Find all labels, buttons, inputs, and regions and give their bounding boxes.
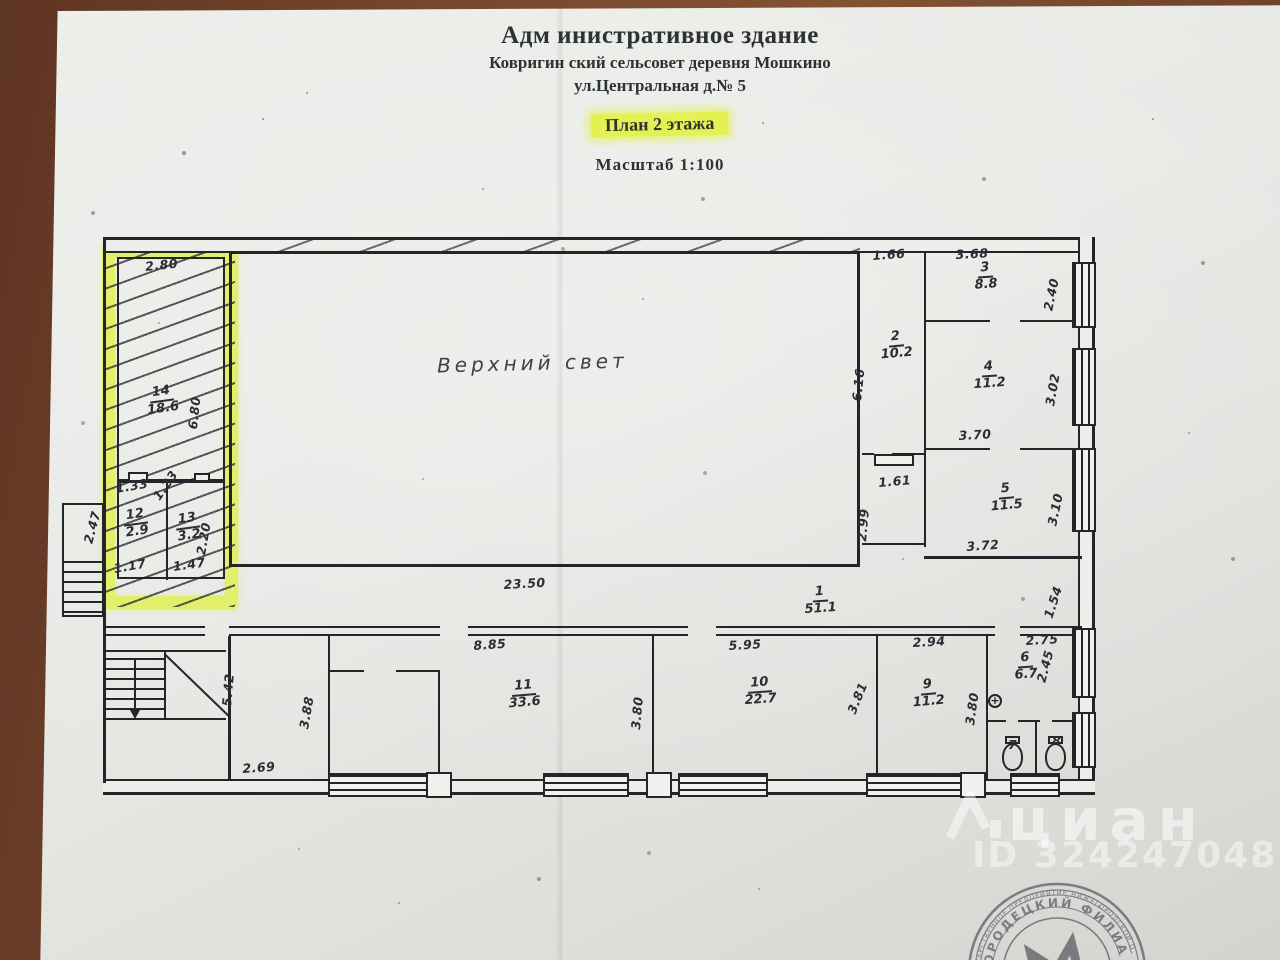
- door-symbol: +: [988, 694, 1002, 708]
- window-symbol: [1072, 712, 1096, 768]
- room-number-area-label: 911.2: [911, 677, 946, 710]
- document-subtitle-2: ул.Центральная д.№ 5: [430, 76, 890, 96]
- dimension-label: 7: [1008, 737, 1017, 752]
- room-number-area-label: 1133.6: [507, 678, 542, 711]
- wall-segment: [228, 636, 231, 780]
- wall-segment: [1020, 448, 1080, 450]
- window-symbol: [1072, 448, 1096, 532]
- wall-pier: [646, 772, 672, 798]
- staircase-divider: [164, 650, 166, 720]
- document-subtitle-1: Ковригин ский сельсовет деревня Мошкино: [430, 53, 890, 73]
- dimension-label: 5.42: [219, 673, 237, 707]
- wall-segment: [229, 634, 440, 636]
- dimension-label: 5.95: [728, 636, 762, 653]
- wall-segment: [396, 670, 438, 672]
- wall-segment: [468, 626, 688, 628]
- dimension-label: 2.99: [854, 508, 872, 542]
- wall-segment: [105, 626, 205, 628]
- room-number-area-label: 122.9: [122, 506, 150, 539]
- wall-segment: [926, 448, 990, 450]
- staircase-arrow-line: [134, 658, 136, 710]
- wall-segment: [330, 670, 364, 672]
- window-symbol: [678, 773, 768, 797]
- window-symbol: [1072, 628, 1096, 698]
- photo-of-floor-plan-document: Адм инистративное здание Ковригин ский с…: [0, 0, 1280, 960]
- room-number-area-label: 210.2: [879, 329, 914, 362]
- dimension-label: 1.66: [872, 246, 906, 263]
- watermark-id: ID 324247048: [972, 835, 1277, 876]
- cian-logo-icon: [946, 788, 1004, 840]
- staircase-top-line: [106, 650, 226, 652]
- room-number-area-label: 38.8: [973, 260, 998, 292]
- wall-segment: [924, 556, 1082, 559]
- room-number-area-label: 511.5: [989, 481, 1024, 514]
- dimension-label: 1.61: [878, 472, 912, 490]
- stamp-branch-text: ГОРОДЕЦКИЙ ФИЛИАЛ: [940, 872, 1131, 960]
- svg-text:ГОРОДЕЦКИЙ ФИЛИАЛ: ГОРОДЕЦКИЙ ФИЛИАЛ: [940, 872, 1131, 960]
- wall-segment: [926, 320, 990, 322]
- room-number-area-label: 151.1: [803, 584, 837, 616]
- hall-label: Верхний свет: [437, 349, 628, 378]
- wall-segment: [862, 543, 926, 545]
- wall-segment: [716, 626, 995, 628]
- wall-segment: [1035, 722, 1037, 780]
- wall-segment: [1020, 320, 1080, 322]
- room-number-area-label: 133.2: [174, 510, 202, 543]
- wall-segment: [988, 720, 1006, 722]
- window-symbol: [328, 773, 428, 797]
- hall-outline: [229, 251, 860, 567]
- round-stamp: ГОРОДЕЦКИЙ ФИЛИАЛ ГОСУДАРСТВЕННОЕ ПРЕДПР…: [940, 872, 1175, 960]
- room-number-area-label: 66.7: [1013, 650, 1038, 682]
- dimension-label: 3.70: [958, 426, 992, 443]
- staircase-bottom-line: [106, 718, 226, 720]
- title-block: Адм инистративное здание Ковригин ский с…: [430, 22, 890, 175]
- wall-segment: [986, 636, 988, 780]
- wall-segment: [438, 670, 440, 780]
- dimension-label: 2.69: [242, 759, 276, 776]
- wall-segment: [876, 636, 878, 780]
- wall-segment: [924, 251, 926, 547]
- dimension-label: 8.85: [473, 636, 507, 653]
- room-14-outline: [117, 257, 225, 481]
- lobby-niche: [874, 454, 914, 466]
- wall-niche: [194, 473, 210, 482]
- wall-segment: [229, 626, 440, 628]
- window-symbol: [1072, 348, 1096, 426]
- scan-noise-specks: [0, 0, 2, 2]
- wall-segment: [105, 634, 205, 636]
- dimension-label: 3.72: [966, 537, 1000, 554]
- dimension-label: 23.50: [503, 575, 546, 592]
- scale-label: Масштаб 1:100: [430, 155, 890, 175]
- document-title: Адм инистративное здание: [430, 22, 890, 50]
- window-symbol: [543, 773, 629, 797]
- dimension-label: 2.94: [912, 633, 946, 650]
- dimension-label: 2.75: [1025, 631, 1059, 648]
- dimension-label: 8: [1052, 733, 1061, 748]
- room-number-area-label: 1418.6: [144, 383, 180, 417]
- top-wall-hatching: [232, 240, 860, 251]
- wall-segment: [652, 636, 654, 780]
- window-symbol: [1072, 262, 1096, 328]
- room-number-area-label: 1022.7: [743, 675, 777, 707]
- wall-pier: [426, 772, 452, 798]
- staircase-arrow-head: [130, 710, 140, 719]
- wall-segment: [892, 453, 926, 455]
- dimension-label: 3.80: [628, 696, 646, 730]
- wall-segment: [862, 453, 874, 455]
- wall-segment: [328, 636, 330, 780]
- plan-label-highlighted: План 2 этажа: [591, 112, 729, 138]
- stoop-steps: [64, 561, 102, 615]
- room-number-area-label: 411.2: [972, 359, 1006, 391]
